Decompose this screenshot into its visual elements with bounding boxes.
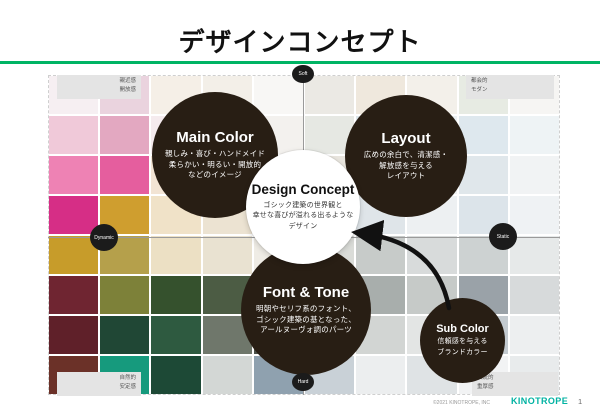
mood-board-cell: [100, 116, 149, 154]
mood-board-cell: [510, 156, 559, 194]
design-concept-line2: 幸せな喜びが溢れる出るような: [253, 211, 354, 221]
mood-board-cell: [49, 156, 98, 194]
axis-label-hard: Hard: [292, 373, 314, 391]
kinotrope-logo: KINOTROPE: [511, 396, 568, 406]
layout-title: Layout: [381, 130, 430, 147]
corner-tl-line2: 開放感: [62, 86, 136, 95]
main-color-line2: 柔らかい・明るい・開放的: [169, 160, 261, 171]
sub-color-title: Sub Color: [436, 323, 489, 335]
mood-board-cell: [510, 196, 559, 234]
design-concept-line3: デザイン: [289, 222, 318, 232]
slide: デザインコンセプト Soft Hard Dynamic Static 親近感 開…: [0, 0, 600, 415]
font-tone-title: Font & Tone: [263, 284, 349, 301]
mood-board-cell: [49, 116, 98, 154]
corner-tl-line1: 親近感: [62, 77, 136, 86]
mood-board-cell: [356, 356, 405, 394]
mood-board-cell: [151, 276, 200, 314]
sub-color-circle: Sub Color 信頼感を与える ブランドカラー: [420, 298, 505, 383]
corner-label-bottom-left: 自然的 安定感: [57, 372, 141, 396]
mood-board-cell: [49, 276, 98, 314]
slide-title: デザインコンセプト: [0, 22, 600, 59]
corner-tr-line2: モダン: [471, 86, 549, 95]
design-concept-title: Design Concept: [252, 182, 355, 197]
sub-color-line1: 信頼感を与える: [437, 337, 487, 347]
mood-board-cell: [100, 156, 149, 194]
axis-label-static: Static: [489, 223, 517, 250]
mood-board-cell: [510, 116, 559, 154]
axis-label-dynamic-text: Dynamic: [94, 235, 113, 241]
layout-circle: Layout 広めの余白で、清潔感・ 解放感を与える レイアウト: [345, 95, 467, 217]
corner-bl-line2: 安定感: [62, 383, 136, 392]
mood-board-cell: [49, 316, 98, 354]
mood-board-cell: [254, 76, 303, 114]
mood-board-cell: [356, 236, 405, 274]
axis-label-soft-text: Soft: [299, 71, 308, 77]
layout-line1: 広めの余白で、清潔感・: [364, 150, 448, 161]
mood-board-cell: [305, 76, 354, 114]
corner-bl-line1: 自然的: [62, 374, 136, 383]
mood-board-cell: [203, 356, 252, 394]
axis-label-static-text: Static: [497, 234, 510, 240]
design-concept-circle: Design Concept ゴシック建築の世界観と 幸せな喜びが溢れる出るよう…: [246, 150, 360, 264]
main-color-title: Main Color: [176, 129, 254, 146]
mood-board-cell: [151, 316, 200, 354]
font-tone-line3: アールヌーヴォ調のパーツ: [260, 325, 352, 336]
layout-line3: レイアウト: [387, 171, 426, 182]
mood-board-cell: [151, 356, 200, 394]
mood-board-cell: [203, 236, 252, 274]
mood-board-cell: [510, 236, 559, 274]
font-tone-circle: Font & Tone 明朝やセリフ系のフォント、 ゴシック建築の基となった、 …: [241, 245, 371, 375]
mood-board-cell: [510, 276, 559, 314]
mood-board-cell: [100, 276, 149, 314]
main-color-line3: などのイメージ: [188, 170, 242, 181]
corner-tr-line1: 都会的: [471, 77, 549, 86]
mood-board-cell: [151, 236, 200, 274]
mood-board-cell: [100, 316, 149, 354]
font-tone-line1: 明朝やセリフ系のフォント、: [256, 304, 356, 315]
footer-copyright: ©2021 KINOTROPE, INC: [433, 400, 490, 406]
title-accent-rule: [0, 61, 600, 64]
corner-label-top-right: 都会的 モダン: [466, 75, 554, 99]
mood-board-cell: [510, 316, 559, 354]
axis-label-hard-text: Hard: [298, 379, 309, 385]
mood-board-cell: [49, 196, 98, 234]
corner-label-top-left: 親近感 開放感: [57, 75, 141, 99]
design-concept-line1: ゴシック建築の世界観と: [263, 201, 342, 211]
layout-line2: 解放感を与える: [379, 161, 433, 172]
corner-br-line2: 重厚感: [477, 383, 553, 392]
main-color-line1: 親しみ・喜び・ハンドメイド: [165, 149, 265, 160]
sub-color-line2: ブランドカラー: [437, 348, 487, 358]
page-number: 1: [578, 397, 582, 406]
axis-label-soft: Soft: [292, 65, 314, 83]
axis-label-dynamic: Dynamic: [90, 224, 118, 251]
font-tone-line2: ゴシック建築の基となった、: [256, 315, 356, 326]
corner-br-line1: 伝統的: [477, 374, 553, 383]
mood-board-cell: [407, 236, 456, 274]
